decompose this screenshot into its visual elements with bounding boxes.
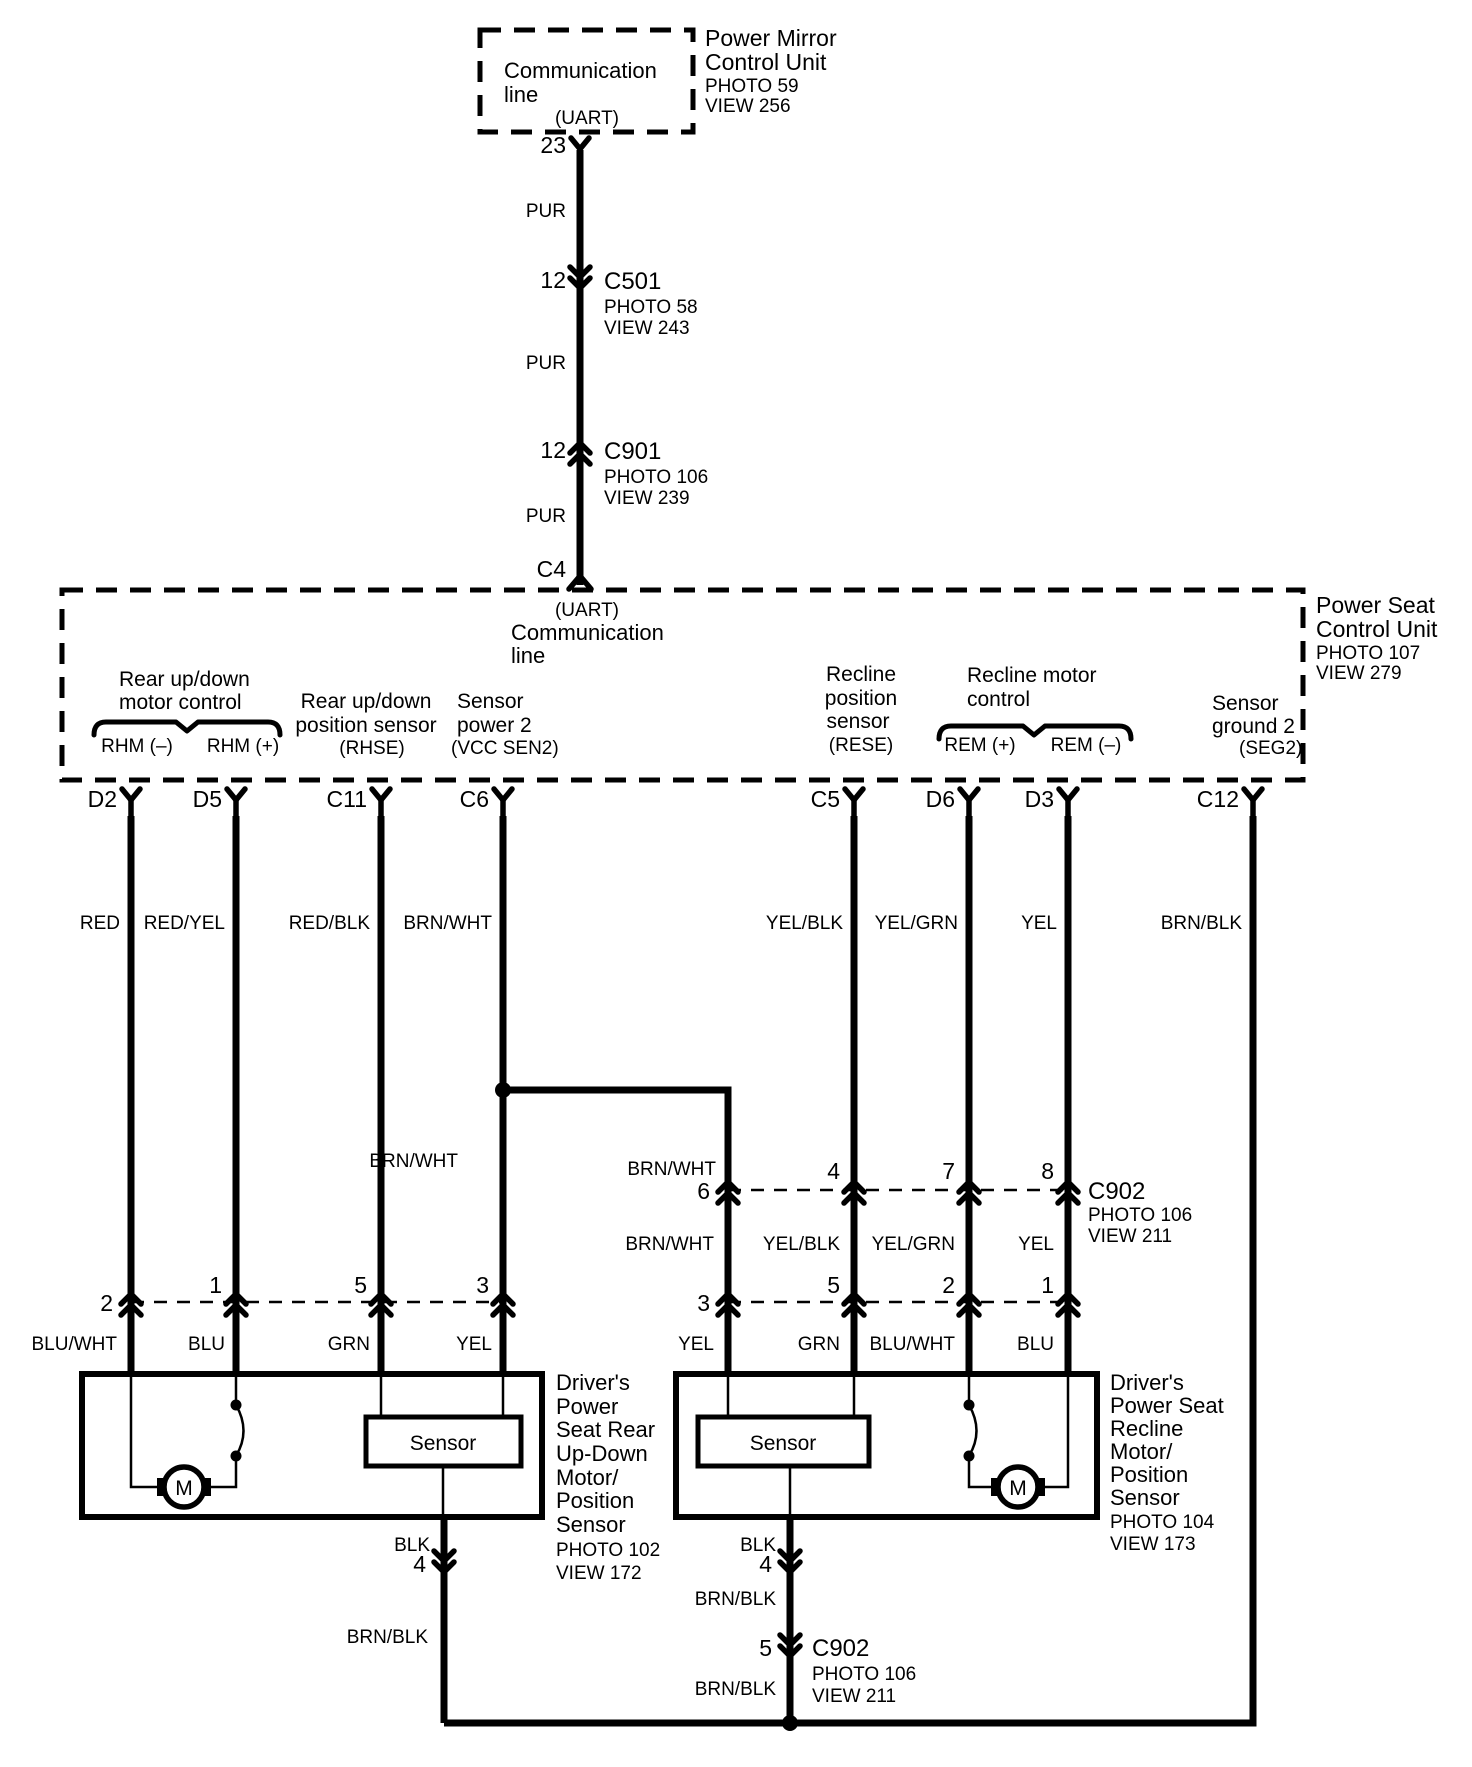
c902-photo: PHOTO 106 xyxy=(1088,1205,1192,1226)
right-sensor-label: Sensor xyxy=(750,1432,817,1455)
left-asm-title-4: Up-Down xyxy=(556,1441,648,1466)
power-seat-title1: Power Seat xyxy=(1316,592,1436,618)
pin-d2-terminal-icon xyxy=(122,789,140,817)
left-conn-pin1: 1 xyxy=(209,1272,222,1298)
power-seat-title2: Control Unit xyxy=(1316,616,1438,642)
main-wires xyxy=(131,816,1253,1723)
wire-color-yel: YEL xyxy=(1021,913,1057,934)
c902-pin4: 4 xyxy=(827,1158,840,1184)
right-asm-photo: PHOTO 104 xyxy=(1110,1512,1215,1533)
pin-d6-terminal-icon xyxy=(960,789,978,817)
rear-motor-label2: motor control xyxy=(119,691,242,714)
pin-c4: C4 xyxy=(537,556,567,582)
recline-motor-label1: Recline motor xyxy=(967,664,1097,687)
recline-sensor-label2: position xyxy=(825,687,897,710)
sensor-ground-label2: ground 2 xyxy=(1212,715,1295,738)
pin-d5-terminal-icon xyxy=(227,789,245,817)
below-color-yel: YEL xyxy=(1018,1234,1054,1255)
ps-comm-label: Communication xyxy=(511,620,664,645)
pin-c11-terminal-icon xyxy=(372,789,390,817)
rear-sensor-label1: Rear up/down xyxy=(301,690,432,713)
wire-color-brnblk: BRN/BLK xyxy=(1161,913,1243,934)
rese-label: (RESE) xyxy=(829,735,893,756)
c902-bottom-name: C902 xyxy=(812,1635,869,1662)
vcc-sen2-label: (VCC SEN2) xyxy=(451,738,559,759)
left-asm-photo: PHOTO 102 xyxy=(556,1540,660,1561)
right-switch-dot1 xyxy=(964,1400,975,1411)
below-color-yelgrn: YEL/GRN xyxy=(872,1234,955,1255)
ps-comm-label2: line xyxy=(511,643,545,668)
pin-d3: D3 xyxy=(1025,786,1054,812)
recline-motor-label2: control xyxy=(967,688,1030,711)
left-asm-title-2: Power xyxy=(556,1394,618,1419)
pin-c6-terminal-icon xyxy=(494,789,512,817)
sensor-power-label2: power 2 xyxy=(457,714,532,737)
pin-d2: D2 xyxy=(88,786,117,812)
left-color-yel: YEL xyxy=(456,1334,492,1355)
right-asm-title-4: Motor/ xyxy=(1110,1439,1173,1464)
power-mirror-photo: PHOTO 59 xyxy=(705,76,799,97)
right-brnblk1-label: BRN/BLK xyxy=(695,1589,777,1610)
power-seat-unit: (UART) Communication line Power Seat Con… xyxy=(62,590,1438,780)
c901-photo: PHOTO 106 xyxy=(604,467,708,488)
right-color-yel: YEL xyxy=(678,1334,714,1355)
left-asm-title-5: Motor/ xyxy=(556,1465,619,1490)
power-seat-photo: PHOTO 107 xyxy=(1316,643,1420,664)
c901-pin: 12 xyxy=(540,437,566,463)
comm-line-label2: line xyxy=(504,82,538,107)
left-asm-title-3: Seat Rear xyxy=(556,1417,655,1442)
wire-color-yelgrn: YEL/GRN xyxy=(875,913,958,934)
right-asm-title-1: Driver's xyxy=(1110,1370,1184,1395)
right-asm-title-5: Position xyxy=(1110,1462,1188,1487)
left-asm-view: VIEW 172 xyxy=(556,1563,642,1584)
seat-unit-pins: D2 D5 C11 C6 C5 D6 D3 C12 xyxy=(88,786,1262,817)
c901-view: VIEW 239 xyxy=(604,488,690,509)
left-switch-dot2 xyxy=(231,1451,242,1462)
left-asm-title-7: Sensor xyxy=(556,1512,626,1537)
rhm-minus-label: RHM (–) xyxy=(101,736,173,757)
power-mirror-title1: Power Mirror xyxy=(705,25,837,51)
left-assembly: M Sensor Driver's Power Seat Rear Up-Dow… xyxy=(82,1370,660,1584)
trunk-wire: PUR 12 C501 PHOTO 58 VIEW 243 PUR 12 C90… xyxy=(526,138,708,589)
c501-view: VIEW 243 xyxy=(604,318,690,339)
c902-bottom-view: VIEW 211 xyxy=(812,1686,896,1707)
pin-c11: C11 xyxy=(327,786,368,812)
pin-23: 23 xyxy=(540,132,566,158)
seg2-label: (SEG2) xyxy=(1239,738,1302,759)
right-brnblk2-label: BRN/BLK xyxy=(695,1679,777,1700)
left-connector-row: 2 1 5 3 BLU/WHT BLU GRN YEL xyxy=(32,1272,514,1355)
wire-branch xyxy=(503,1090,728,1374)
pin-23-terminal-icon xyxy=(571,138,589,166)
right-pin4: 4 xyxy=(759,1551,772,1577)
right-asm-title-6: Sensor xyxy=(1110,1485,1180,1510)
pin-c5-terminal-icon xyxy=(845,789,863,817)
left-color-bluwht: BLU/WHT xyxy=(32,1334,118,1355)
pin-d5: D5 xyxy=(193,786,222,812)
wire-c12-ground xyxy=(444,816,1253,1723)
rhse-label: (RHSE) xyxy=(339,738,404,759)
wire-color-redblk: RED/BLK xyxy=(289,913,371,934)
left-color-grn: GRN xyxy=(328,1334,370,1355)
left-asm-title-6: Position xyxy=(556,1488,634,1513)
right-asm-title-3: Recline xyxy=(1110,1416,1183,1441)
diagram-canvas: Communication line (UART) Power Mirror C… xyxy=(0,0,1472,1762)
right-conn-pin3: 3 xyxy=(697,1290,710,1316)
left-sensor-label: Sensor xyxy=(410,1432,477,1455)
c6-color-label: BRN/WHT xyxy=(369,1151,458,1172)
wire-color-pur3: PUR xyxy=(526,506,566,527)
wire-color-yelblk: YEL/BLK xyxy=(766,913,843,934)
wire-color-red: RED xyxy=(80,913,120,934)
wire-color-redyel: RED/YEL xyxy=(144,913,225,934)
rear-sensor-label2: position sensor xyxy=(295,714,436,737)
recline-sensor-label1: Recline xyxy=(826,663,896,686)
right-connector-row: 3 5 2 1 YEL GRN BLU/WHT BLU xyxy=(678,1272,1078,1355)
rear-motor-label1: Rear up/down xyxy=(119,668,250,691)
recline-sensor-label3: sensor xyxy=(826,710,889,733)
branch-color-label: BRN/WHT xyxy=(627,1159,716,1180)
below-color-yelblk: YEL/BLK xyxy=(763,1234,840,1255)
sensor-power-label1: Sensor xyxy=(457,690,524,713)
right-conn-pin5: 5 xyxy=(827,1272,840,1298)
wire-color-brnwht: BRN/WHT xyxy=(403,913,492,934)
right-asm-title-2: Power Seat xyxy=(1110,1393,1224,1418)
c902-bottom-photo: PHOTO 106 xyxy=(812,1664,916,1685)
c501-name: C501 xyxy=(604,268,661,295)
pin-d3-terminal-icon xyxy=(1059,789,1077,817)
power-seat-view: VIEW 279 xyxy=(1316,663,1402,684)
pin-d6: D6 xyxy=(926,786,955,812)
wire-color-pur2: PUR xyxy=(526,353,566,374)
c501-photo: PHOTO 58 xyxy=(604,297,698,318)
left-brnblk-label: BRN/BLK xyxy=(347,1627,429,1648)
wire-color-pur1: PUR xyxy=(526,201,566,222)
c501-pin: 12 xyxy=(540,267,566,293)
c902-pin7: 7 xyxy=(942,1158,955,1184)
right-asm-view: VIEW 173 xyxy=(1110,1534,1196,1555)
c902-pin8: 8 xyxy=(1041,1158,1054,1184)
left-conn-pin2: 2 xyxy=(100,1290,113,1316)
ground-junction-dot xyxy=(782,1715,798,1731)
wiring-diagram: Communication line (UART) Power Mirror C… xyxy=(0,0,1472,1762)
right-conn-pin2: 2 xyxy=(942,1272,955,1298)
uart-label: (UART) xyxy=(555,108,619,129)
right-color-grn: GRN xyxy=(798,1334,840,1355)
c902-name: C902 xyxy=(1088,1178,1145,1205)
pin-c12: C12 xyxy=(1197,786,1239,812)
left-conn-pin3: 3 xyxy=(476,1272,489,1298)
pin-c5: C5 xyxy=(811,786,840,812)
power-mirror-unit: Communication line (UART) Power Mirror C… xyxy=(480,25,837,158)
pin-c12-terminal-icon xyxy=(1244,789,1262,817)
right-conn-pin1: 1 xyxy=(1041,1272,1054,1298)
left-conn-pin5: 5 xyxy=(354,1272,367,1298)
c902-bottom-pin: 5 xyxy=(759,1635,772,1661)
junction-dot xyxy=(495,1082,511,1098)
ps-uart-label: (UART) xyxy=(555,600,619,621)
rear-motor-brace xyxy=(94,722,280,735)
power-mirror-view: VIEW 256 xyxy=(705,96,791,117)
below-color-brnwht: BRN/WHT xyxy=(625,1234,714,1255)
c902-pin6: 6 xyxy=(697,1178,710,1204)
comm-line-label: Communication xyxy=(504,58,657,83)
sensor-ground-label1: Sensor xyxy=(1212,692,1279,715)
power-mirror-title2: Control Unit xyxy=(705,49,827,75)
left-pin4: 4 xyxy=(413,1551,426,1577)
left-motor-label: M xyxy=(175,1477,193,1500)
rem-minus-label: REM (–) xyxy=(1051,735,1122,756)
left-asm-title-1: Driver's xyxy=(556,1370,630,1395)
rhm-plus-label: RHM (+) xyxy=(207,736,279,757)
pin-c6: C6 xyxy=(460,786,489,812)
right-assembly: Sensor M Driver's Power Seat Recline Mot… xyxy=(676,1370,1224,1555)
right-color-blu: BLU xyxy=(1017,1334,1054,1355)
c901-name: C901 xyxy=(604,438,661,465)
right-color-bluwht: BLU/WHT xyxy=(870,1334,956,1355)
right-motor-label: M xyxy=(1009,1477,1027,1500)
rem-plus-label: REM (+) xyxy=(944,735,1015,756)
c902-view: VIEW 211 xyxy=(1088,1226,1172,1247)
left-color-blu: BLU xyxy=(188,1334,225,1355)
